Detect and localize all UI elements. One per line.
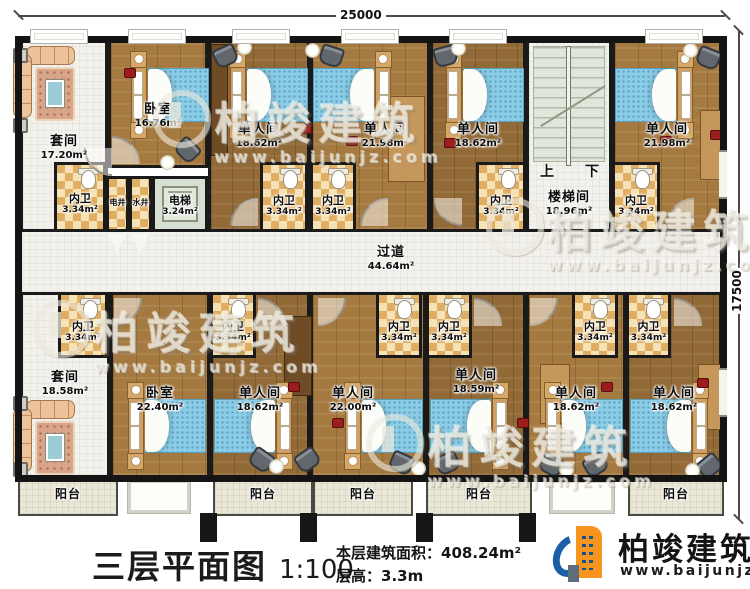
- room-name: 内卫: [213, 321, 253, 333]
- balcony: 阳台: [18, 478, 118, 516]
- red-accent: [601, 382, 613, 392]
- elevator-car: [162, 186, 198, 222]
- red-accent: [300, 124, 312, 134]
- shaft-door: [107, 233, 127, 253]
- floor-height-label: 层高：: [336, 567, 381, 585]
- bed: [214, 398, 292, 454]
- desk: [700, 110, 721, 180]
- window: [341, 29, 399, 44]
- plan-title-block: 三层平面图1:100: [92, 540, 362, 589]
- red-accent: [517, 418, 529, 428]
- bed: [131, 67, 209, 123]
- ceiling-lamp: [412, 462, 425, 475]
- wall-unit: [13, 118, 28, 133]
- balcony: 阳台: [426, 478, 532, 516]
- window: [30, 29, 88, 44]
- floor-height-line: 层高：3.3m: [336, 565, 521, 588]
- wall-unit: [13, 396, 28, 411]
- window: [719, 150, 727, 199]
- floor-plan-canvas: 25000 17500 套间17.20m² 卧室16.76m² 内卫3.34m²…: [0, 0, 750, 589]
- wall-unit: [13, 462, 28, 477]
- room-bath-top-3: 内卫3.34m²: [476, 162, 526, 232]
- bed: [230, 67, 308, 123]
- room-area: 18.96m²: [529, 206, 609, 217]
- room-area: 3.34m²: [263, 207, 305, 217]
- room-name: 水井: [132, 199, 149, 208]
- ceiling-lamp: [684, 44, 697, 57]
- bed: [545, 398, 623, 454]
- wall-pier: [200, 513, 217, 542]
- ceiling-lamp: [560, 463, 573, 476]
- red-accent: [444, 138, 456, 148]
- room-bath-bottom-5: 内卫3.34m²: [572, 292, 618, 358]
- room-name: 内卫: [629, 321, 668, 333]
- room-shaft-water: 水井: [129, 176, 152, 232]
- ceiling-lamp: [161, 156, 174, 169]
- window: [128, 29, 186, 44]
- room-area: 3.34m²: [615, 207, 657, 217]
- wall-unit: [13, 48, 28, 63]
- room-bath-top-1: 内卫3.34m²: [260, 162, 308, 232]
- room-area: 3.34m²: [313, 207, 353, 217]
- wall-pier: [300, 513, 317, 542]
- room-bath-top-2: 内卫3.34m²: [310, 162, 356, 232]
- ceiling-lamp: [686, 464, 699, 477]
- room-elevator: 电梯3.24m²: [152, 176, 208, 232]
- red-accent: [346, 136, 358, 146]
- bed: [128, 398, 206, 454]
- porch: [550, 480, 614, 513]
- dimension-height-label: 17500: [730, 268, 744, 314]
- window: [719, 368, 727, 417]
- red-accent: [697, 378, 709, 388]
- room-name: 内卫: [429, 321, 469, 333]
- room-bath-bottom-6: 内卫3.34m²: [626, 292, 671, 358]
- floor-area-value: 408.24m²: [441, 544, 521, 562]
- floor-height-value: 3.3m: [381, 567, 423, 585]
- bed: [430, 398, 508, 454]
- room-area: 3.34m²: [575, 333, 615, 343]
- balcony: 阳台: [628, 478, 724, 516]
- brand-site: www.baijunjz.com: [620, 563, 750, 579]
- room-name: 电井: [109, 199, 126, 208]
- room-name: 内卫: [61, 321, 105, 333]
- room-name: 内卫: [57, 193, 103, 205]
- room-name: 楼梯间: [529, 191, 609, 206]
- plan-title: 三层平面图: [92, 547, 267, 586]
- room-area: 18.58m²: [23, 386, 107, 397]
- room-area: 3.34m²: [61, 333, 105, 343]
- room-area: 3.34m²: [479, 207, 523, 217]
- room-area: 3.34m²: [429, 333, 469, 343]
- red-accent: [332, 418, 344, 428]
- room-name: 内卫: [615, 195, 657, 207]
- stairs-up-label: 上: [540, 161, 554, 181]
- brand-logo-icon: [556, 526, 608, 582]
- window: [449, 29, 507, 44]
- logo-building: [576, 526, 602, 578]
- room-name: 内卫: [479, 195, 523, 207]
- bed: [345, 398, 423, 454]
- balcony: 阳台: [213, 478, 313, 516]
- shaft-door: [130, 233, 150, 253]
- room-bath-bottom-2: 内卫3.34m²: [210, 292, 256, 358]
- room-name: 套间: [23, 371, 107, 386]
- desk: [388, 96, 425, 182]
- room-name: 内卫: [313, 195, 353, 207]
- room-bath-bottom-4: 内卫3.34m²: [426, 292, 472, 358]
- room-name: 内卫: [575, 321, 615, 333]
- window: [645, 29, 703, 44]
- porch: [128, 480, 190, 513]
- bed: [313, 67, 391, 123]
- room-name: 内卫: [379, 321, 419, 333]
- room-area: 3.34m²: [213, 333, 253, 343]
- stairs-down-label: 下: [585, 161, 599, 181]
- bed: [446, 67, 524, 123]
- room-bath-top-4: 内卫3.34m²: [612, 162, 660, 232]
- plan-info: 本层建筑面积：408.24m² 层高：3.3m: [336, 542, 521, 589]
- room-area: 3.34m²: [379, 333, 419, 343]
- ceiling-lamp: [306, 44, 319, 57]
- red-accent: [288, 382, 300, 392]
- room-bath-bottom-1: 内卫3.34m²: [58, 292, 108, 358]
- room-name: 内卫: [263, 195, 305, 207]
- red-accent: [660, 136, 672, 146]
- red-accent: [710, 130, 722, 140]
- dimension-width-label: 25000: [336, 8, 386, 22]
- bed: [630, 398, 708, 454]
- wall-pier: [416, 513, 433, 542]
- balcony: 阳台: [313, 478, 413, 516]
- balcony-label: 阳台: [630, 488, 722, 501]
- room-area: 3.34m²: [629, 333, 668, 343]
- room-area: 3.34m²: [57, 205, 103, 215]
- ceiling-lamp: [270, 460, 283, 473]
- room-bath-bottom-3: 内卫3.34m²: [376, 292, 422, 358]
- room-area: 44.64m²: [62, 261, 720, 272]
- room-name: 过道: [62, 246, 720, 261]
- logo-building-small: [568, 565, 579, 582]
- balcony-label: 阳台: [428, 488, 530, 501]
- bed: [615, 67, 693, 123]
- room-shaft-electrical: 电井: [106, 176, 129, 232]
- room-stairwell: 上 下 楼梯间18.96m²: [526, 40, 612, 232]
- floor-area-label: 本层建筑面积：: [336, 544, 441, 562]
- balcony-label: 阳台: [315, 488, 411, 501]
- floor-area-line: 本层建筑面积：408.24m²: [336, 542, 521, 565]
- balcony-label: 阳台: [20, 488, 116, 501]
- balcony-label: 阳台: [215, 488, 311, 501]
- red-accent: [124, 68, 136, 78]
- wall-pier: [519, 513, 536, 542]
- window: [232, 29, 290, 44]
